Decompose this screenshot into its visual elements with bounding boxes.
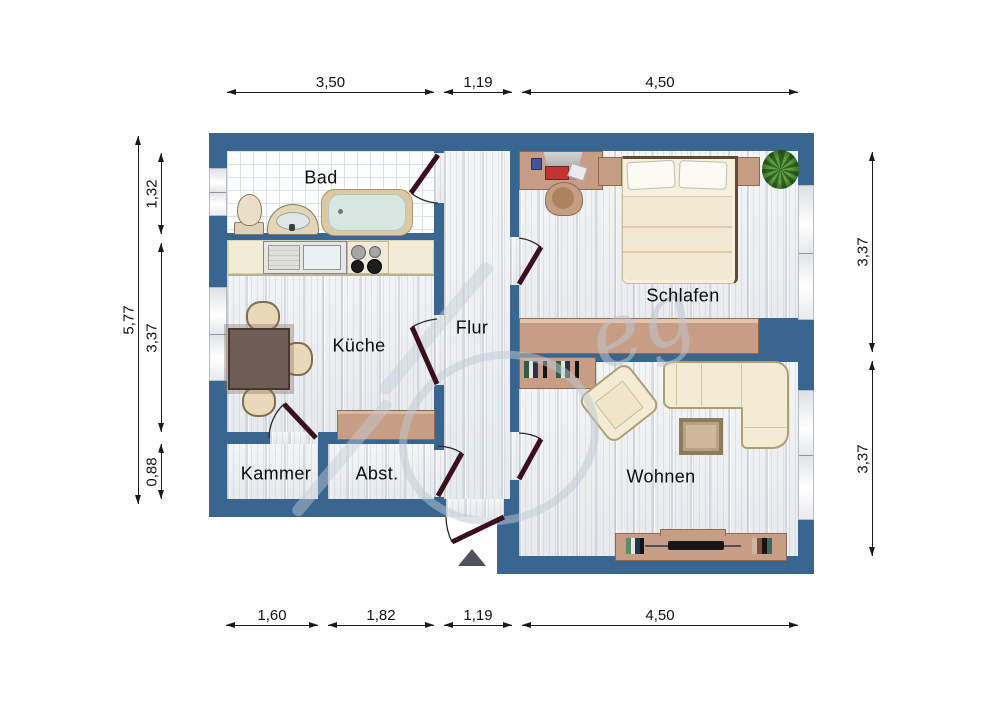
dimension-label: 0,88 <box>144 452 161 491</box>
dimension-label: 1,19 <box>458 607 497 624</box>
dimension-label: 1,32 <box>144 174 161 213</box>
dimension-left-outer: 5,77 <box>138 136 139 504</box>
floor-plan: eg Bad Küche Flur Schlafen Kammer Abst. … <box>0 0 1000 706</box>
wohnen-label: Wohnen <box>626 467 695 488</box>
dimension-bottom-4: 4,50 <box>522 625 798 626</box>
kueche-door-leaf <box>412 327 437 384</box>
kammer-label: Kammer <box>241 464 311 485</box>
dimension-label: 1,19 <box>458 74 497 91</box>
kueche-door-arc <box>412 319 437 327</box>
entrance-door-leaf <box>452 517 504 542</box>
kammer-door-leaf <box>284 404 316 438</box>
dimension-bottom-3: 1,19 <box>444 625 512 626</box>
wohnen-door-leaf <box>519 439 541 479</box>
bad-door-leaf <box>411 155 438 193</box>
dimension-label: 3,50 <box>311 74 350 91</box>
bad-label: Bad <box>304 168 337 189</box>
bad-door-arc <box>411 193 438 203</box>
dimension-label: 3,37 <box>855 439 872 478</box>
dimension-label: 1,60 <box>252 607 291 624</box>
kammer-door-arc <box>269 404 284 438</box>
dimension-bottom-2: 1,82 <box>328 625 434 626</box>
dimension-label: 4,50 <box>640 607 679 624</box>
dimension-right-1: 3,37 <box>872 152 873 352</box>
schlafen-door-arc <box>519 238 541 247</box>
dimension-left-1: 1,32 <box>161 153 162 234</box>
dimension-top-1: 3,50 <box>227 92 434 93</box>
abstellraum-door-arc <box>438 446 462 453</box>
dimension-top-2: 1,19 <box>444 92 512 93</box>
dimension-top-3: 4,50 <box>522 92 798 93</box>
dimension-left-3: 0,88 <box>161 444 162 499</box>
abstellraum-label: Abst. <box>355 464 398 485</box>
dimension-label: 4,50 <box>640 74 679 91</box>
entrance-door-arc <box>446 517 452 542</box>
dimension-bottom-1: 1,60 <box>226 625 318 626</box>
abstellraum-door-leaf <box>438 453 462 496</box>
dimension-left-2: 3,37 <box>161 243 162 432</box>
dimension-label: 3,37 <box>144 318 161 357</box>
dimension-right-2: 3,37 <box>872 361 873 556</box>
flur-label: Flur <box>456 318 489 339</box>
dimension-label: 1,82 <box>361 607 400 624</box>
wohnen-door-arc <box>519 433 541 439</box>
schlafen-door-leaf <box>519 247 541 284</box>
dimension-label: 5,77 <box>121 300 138 339</box>
schlafen-label: Schlafen <box>646 286 719 307</box>
dimension-label: 3,37 <box>855 232 872 271</box>
kueche-label: Küche <box>332 336 385 357</box>
